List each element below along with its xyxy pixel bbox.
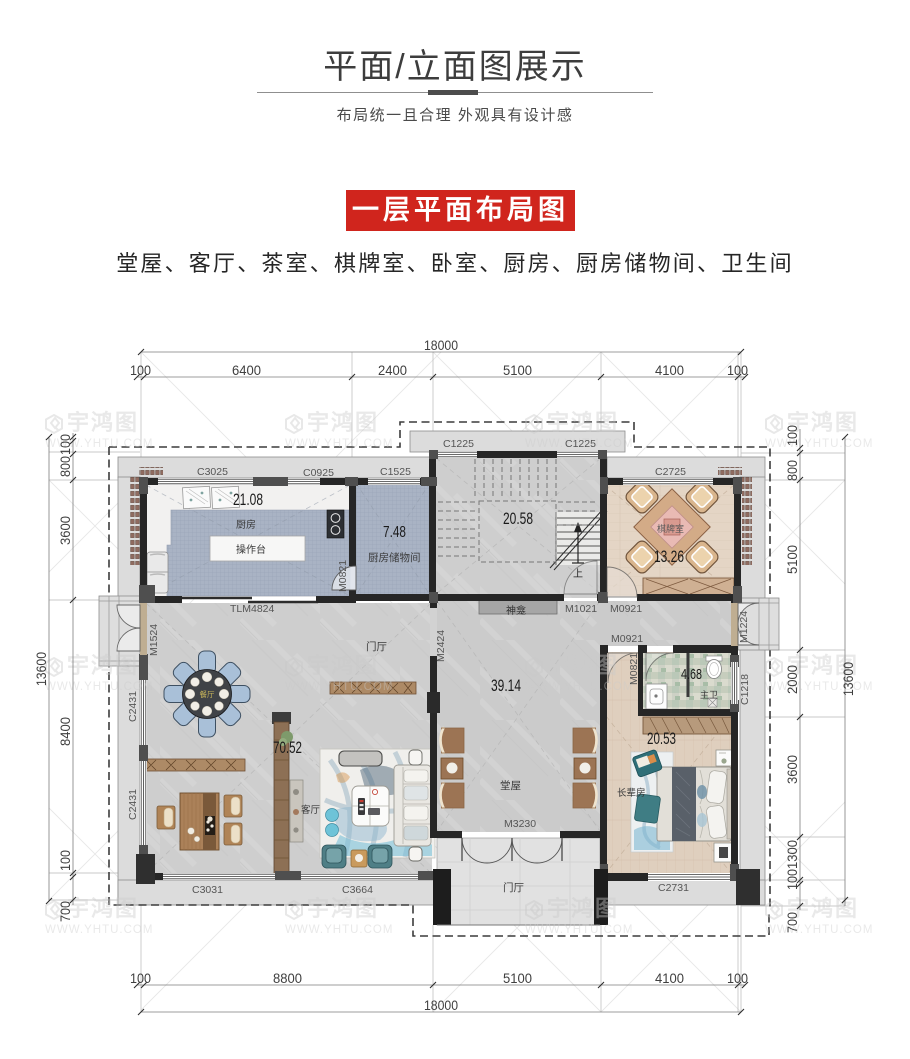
svg-text:C3025: C3025	[197, 466, 228, 478]
svg-text:8800: 8800	[273, 971, 302, 986]
svg-text:20.58: 20.58	[503, 509, 533, 528]
svg-text:主卫: 主卫	[700, 689, 718, 700]
svg-text:M1021: M1021	[565, 603, 597, 615]
svg-text:3600: 3600	[58, 516, 73, 545]
svg-text:M1224: M1224	[738, 611, 750, 643]
svg-text:TLM4824: TLM4824	[230, 603, 275, 615]
svg-text:5100: 5100	[503, 363, 532, 378]
svg-text:C2725: C2725	[655, 466, 686, 478]
svg-text:20.53: 20.53	[647, 729, 676, 748]
svg-text:7.48: 7.48	[383, 524, 406, 541]
svg-text:6400: 6400	[232, 363, 261, 378]
svg-text:100: 100	[58, 434, 73, 455]
svg-text:长辈房: 长辈房	[617, 787, 646, 799]
svg-text:100: 100	[785, 425, 800, 446]
svg-text:100: 100	[130, 363, 151, 378]
svg-text:100: 100	[58, 850, 73, 871]
svg-text:神龛: 神龛	[506, 604, 526, 617]
svg-text:棋牌室: 棋牌室	[657, 523, 684, 534]
svg-text:M0921: M0921	[611, 633, 643, 645]
svg-text:WWW.YHTU.COM: WWW.YHTU.COM	[285, 438, 393, 450]
svg-text:餐厅: 餐厅	[200, 690, 215, 699]
svg-text:操作台: 操作台	[236, 543, 266, 556]
svg-text:M2424: M2424	[435, 630, 447, 662]
svg-text:客厅: 客厅	[301, 804, 321, 816]
svg-text:800: 800	[785, 460, 800, 481]
svg-text:100: 100	[130, 971, 151, 986]
svg-text:C2431: C2431	[127, 789, 139, 820]
svg-text:C1225: C1225	[443, 438, 474, 450]
svg-text:700: 700	[785, 912, 800, 933]
svg-text:5100: 5100	[503, 971, 532, 986]
svg-text:厨房储物间: 厨房储物间	[368, 551, 421, 564]
svg-text:4.68: 4.68	[681, 666, 702, 683]
svg-text:2400: 2400	[378, 363, 407, 378]
svg-text:800: 800	[58, 456, 73, 477]
svg-text:18000: 18000	[424, 998, 458, 1013]
svg-text:门厅: 门厅	[366, 640, 387, 653]
svg-text:18000: 18000	[424, 338, 458, 353]
svg-text:C0925: C0925	[303, 467, 334, 479]
svg-text:M0821: M0821	[337, 560, 349, 592]
svg-text:4100: 4100	[655, 971, 684, 986]
svg-text:100: 100	[785, 869, 800, 890]
svg-text:厨房: 厨房	[236, 518, 256, 531]
svg-text:C1525: C1525	[380, 466, 411, 478]
svg-text:C2731: C2731	[658, 882, 689, 894]
svg-text:13600: 13600	[34, 652, 49, 686]
svg-text:M1524: M1524	[148, 624, 160, 656]
svg-text:21.08: 21.08	[233, 490, 263, 509]
svg-text:100: 100	[727, 971, 748, 986]
svg-text:39.14: 39.14	[491, 676, 521, 695]
svg-text:C3664: C3664	[342, 884, 373, 896]
svg-text:70.52: 70.52	[273, 738, 302, 757]
svg-text:C1218: C1218	[739, 674, 751, 705]
svg-text:700: 700	[58, 901, 73, 922]
svg-text:M3230: M3230	[504, 818, 536, 830]
svg-text:门厅: 门厅	[503, 881, 524, 894]
svg-text:8400: 8400	[58, 717, 73, 746]
svg-text:上: 上	[573, 568, 583, 580]
svg-text:13600: 13600	[841, 662, 856, 696]
svg-text:M0921: M0921	[610, 603, 642, 615]
svg-text:3600: 3600	[785, 755, 800, 784]
svg-text:C3031: C3031	[192, 884, 223, 896]
svg-text:4100: 4100	[655, 363, 684, 378]
svg-text:13.26: 13.26	[654, 547, 684, 566]
svg-text:C2431: C2431	[127, 691, 139, 722]
svg-text:C1225: C1225	[565, 438, 596, 450]
svg-text:5100: 5100	[785, 545, 800, 574]
svg-text:100: 100	[727, 363, 748, 378]
svg-text:堂屋: 堂屋	[500, 780, 521, 792]
svg-text:1300: 1300	[785, 840, 800, 869]
svg-text:M0821: M0821	[628, 653, 640, 685]
svg-text:2000: 2000	[785, 665, 800, 694]
svg-text:宇鸿图: 宇鸿图	[307, 410, 379, 435]
